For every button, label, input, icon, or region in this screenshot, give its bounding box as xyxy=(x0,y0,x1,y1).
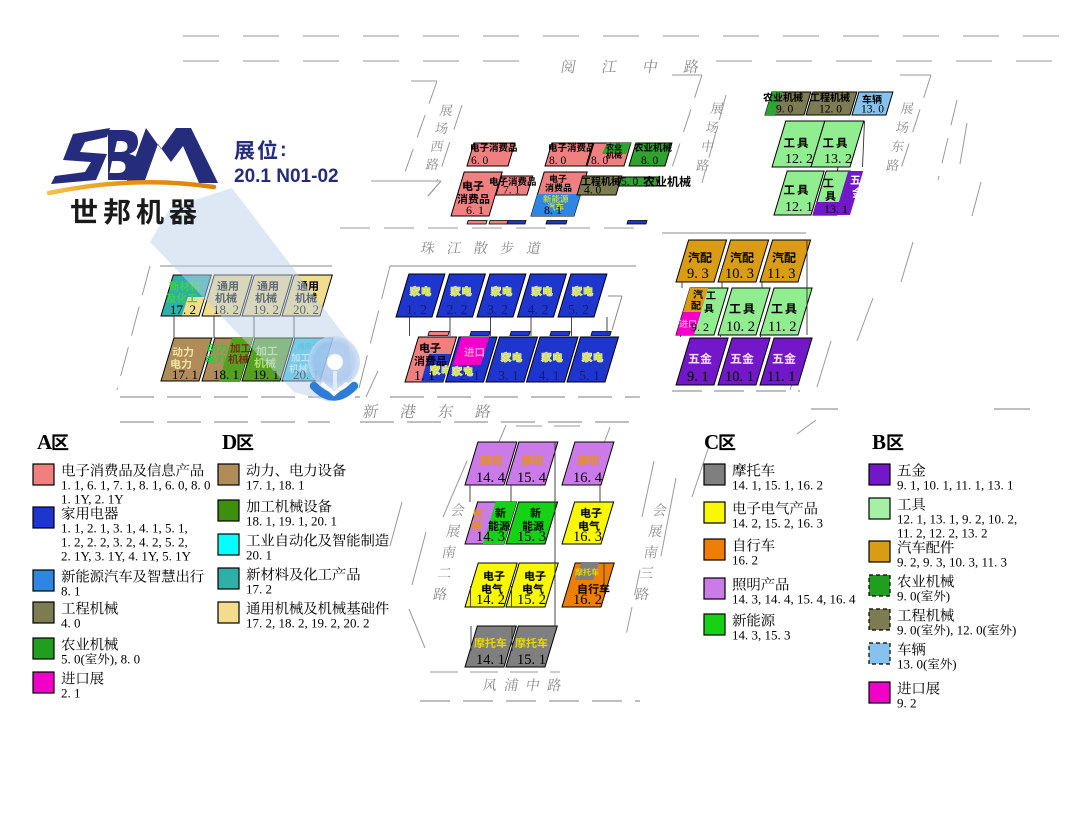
svg-text:8. 0: 8. 0 xyxy=(591,155,609,167)
svg-text:1. 1Y, 2. 1Y: 1. 1Y, 2. 1Y xyxy=(61,492,124,507)
svg-text:12. 0: 12. 0 xyxy=(819,104,842,116)
svg-text:9. 0: 9. 0 xyxy=(776,104,794,116)
svg-text:11. 2: 11. 2 xyxy=(768,319,796,335)
svg-text:14. 3, 15. 3: 14. 3, 15. 3 xyxy=(732,628,791,643)
svg-text:12. 2: 12. 2 xyxy=(785,152,813,167)
svg-text:9. 2, 9. 3, 10. 3, 11. 3: 9. 2, 9. 3, 10. 3, 11. 3 xyxy=(897,555,1007,570)
svg-text:8. 1: 8. 1 xyxy=(544,203,562,217)
svg-text:2. 2: 2. 2 xyxy=(447,303,468,318)
svg-text:5. 2: 5. 2 xyxy=(568,303,589,318)
svg-text:1. 2, 2. 2, 3. 2, 4. 2, 5. 2,: 1. 2, 2. 2, 3. 2, 4. 2, 5. 2, xyxy=(61,535,188,550)
svg-text:): ) xyxy=(952,657,956,672)
svg-text:): ) xyxy=(946,589,950,604)
svg-text:9. 2: 9. 2 xyxy=(897,696,917,711)
svg-text:13. 1: 13. 1 xyxy=(824,202,848,216)
svg-text:10. 1: 10. 1 xyxy=(725,369,754,385)
svg-text:11. 1: 11. 1 xyxy=(767,369,795,385)
svg-text:9. 2: 9. 2 xyxy=(691,320,709,334)
svg-text:16. 2: 16. 2 xyxy=(732,553,758,568)
svg-text:A: A xyxy=(37,430,53,454)
svg-text:17. 2: 17. 2 xyxy=(170,302,196,317)
svg-text:B: B xyxy=(872,430,886,454)
svg-text:7. 1: 7. 1 xyxy=(503,185,521,197)
svg-text:4. 0: 4. 0 xyxy=(61,616,81,631)
svg-text:14. 2: 14. 2 xyxy=(476,592,505,608)
svg-text:8. 0: 8. 0 xyxy=(549,155,567,167)
svg-text:14. 1, 15. 1, 16. 2: 14. 1, 15. 1, 16. 2 xyxy=(732,478,823,493)
svg-text:5. 0(: 5. 0( xyxy=(61,652,85,667)
svg-text:8. 1: 8. 1 xyxy=(61,584,81,599)
svg-text:2. 1Y, 3. 1Y, 4. 1Y, 5. 1Y: 2. 1Y, 3. 1Y, 4. 1Y, 5. 1Y xyxy=(61,549,192,564)
svg-text:14. 3, 14. 4, 15. 4, 16. 4: 14. 3, 14. 4, 15. 4, 16. 4 xyxy=(732,592,856,607)
svg-text:18. 1: 18. 1 xyxy=(213,367,239,382)
svg-text:14. 1: 14. 1 xyxy=(476,652,505,668)
svg-text:15. 2: 15. 2 xyxy=(517,592,546,608)
svg-text:16. 2: 16. 2 xyxy=(573,592,602,608)
svg-text::: : xyxy=(280,139,287,161)
svg-text:9. 0(: 9. 0( xyxy=(897,623,921,638)
svg-text:9. 0(: 9. 0( xyxy=(897,589,921,604)
svg-text:3. 1: 3. 1 xyxy=(498,369,519,384)
svg-text:12. 1, 13. 1, 9. 2, 10. 2,: 12. 1, 13. 1, 9. 2, 10. 2, xyxy=(897,512,1017,527)
svg-text:4. 0: 4. 0 xyxy=(584,185,602,197)
svg-text:20. 1: 20. 1 xyxy=(246,548,272,563)
svg-text:14. 3: 14. 3 xyxy=(476,529,505,545)
svg-text:6. 1: 6. 1 xyxy=(466,203,484,217)
svg-text:20.1 N01-02: 20.1 N01-02 xyxy=(234,166,339,187)
svg-text:6. 0: 6. 0 xyxy=(471,155,489,167)
svg-text:15. 4: 15. 4 xyxy=(517,470,547,486)
svg-text:5. 0: 5. 0 xyxy=(621,176,639,188)
svg-text:): ) xyxy=(1012,623,1016,638)
svg-text:3. 2: 3. 2 xyxy=(487,303,508,318)
svg-text:11. 2, 12. 2, 13. 2: 11. 2, 12. 2, 13. 2 xyxy=(897,526,988,541)
svg-text:1. 1, 2. 1, 3. 1, 4. 1, 5. 1,: 1. 1, 2. 1, 3. 1, 4. 1, 5. 1, xyxy=(61,521,188,536)
svg-text:), 12. 0(: ), 12. 0( xyxy=(946,623,987,638)
svg-text:9. 1: 9. 1 xyxy=(687,369,709,385)
svg-text:1. 1: 1. 1 xyxy=(414,369,435,384)
svg-text:16. 4: 16. 4 xyxy=(573,470,603,486)
svg-text:14. 2, 15. 2, 16. 3: 14. 2, 15. 2, 16. 3 xyxy=(732,516,823,531)
svg-text:9. 3: 9. 3 xyxy=(687,266,709,282)
svg-text:14. 4: 14. 4 xyxy=(476,470,506,486)
svg-text:17. 2: 17. 2 xyxy=(246,582,272,597)
svg-text:17. 1: 17. 1 xyxy=(172,367,198,382)
svg-text:17. 1, 18. 1: 17. 1, 18. 1 xyxy=(246,478,305,493)
svg-text:15. 3: 15. 3 xyxy=(517,529,546,545)
svg-text:11. 3: 11. 3 xyxy=(767,266,795,282)
svg-text:4. 1: 4. 1 xyxy=(539,369,560,384)
svg-text:4. 2: 4. 2 xyxy=(528,303,549,318)
svg-text:9. 1, 10. 1, 11. 1, 13. 1: 9. 1, 10. 1, 11. 1, 13. 1 xyxy=(897,478,1014,493)
svg-text:10. 3: 10. 3 xyxy=(725,266,754,282)
svg-text:12. 1: 12. 1 xyxy=(785,200,813,215)
svg-text:13. 2: 13. 2 xyxy=(824,152,852,167)
svg-text:1. 2: 1. 2 xyxy=(406,303,427,318)
svg-text:13. 0(: 13. 0( xyxy=(897,657,927,672)
svg-text:2. 1: 2. 1 xyxy=(459,369,480,384)
svg-text:10. 2: 10. 2 xyxy=(726,319,755,335)
svg-text:), 8. 0: ), 8. 0 xyxy=(110,652,140,667)
svg-text:2. 1: 2. 1 xyxy=(61,686,81,701)
svg-text:1. 1, 6. 1, 7. 1, 8. 1, 6. 0,: 1. 1, 6. 1, 7. 1, 8. 1, 6. 0, 8. 0 xyxy=(61,478,211,493)
svg-text:C: C xyxy=(704,430,719,454)
svg-text:5. 1: 5. 1 xyxy=(579,369,600,384)
svg-text:15. 1: 15. 1 xyxy=(517,652,546,668)
svg-text:8. 0: 8. 0 xyxy=(641,155,659,167)
svg-text:D: D xyxy=(222,430,237,454)
svg-text:18. 1, 19. 1, 20. 1: 18. 1, 19. 1, 20. 1 xyxy=(246,514,337,529)
svg-text:13. 0: 13. 0 xyxy=(861,104,884,116)
svg-text:16. 3: 16. 3 xyxy=(573,529,602,545)
svg-text:17. 2, 18. 2, 19. 2, 20. 2: 17. 2, 18. 2, 19. 2, 20. 2 xyxy=(246,616,370,631)
